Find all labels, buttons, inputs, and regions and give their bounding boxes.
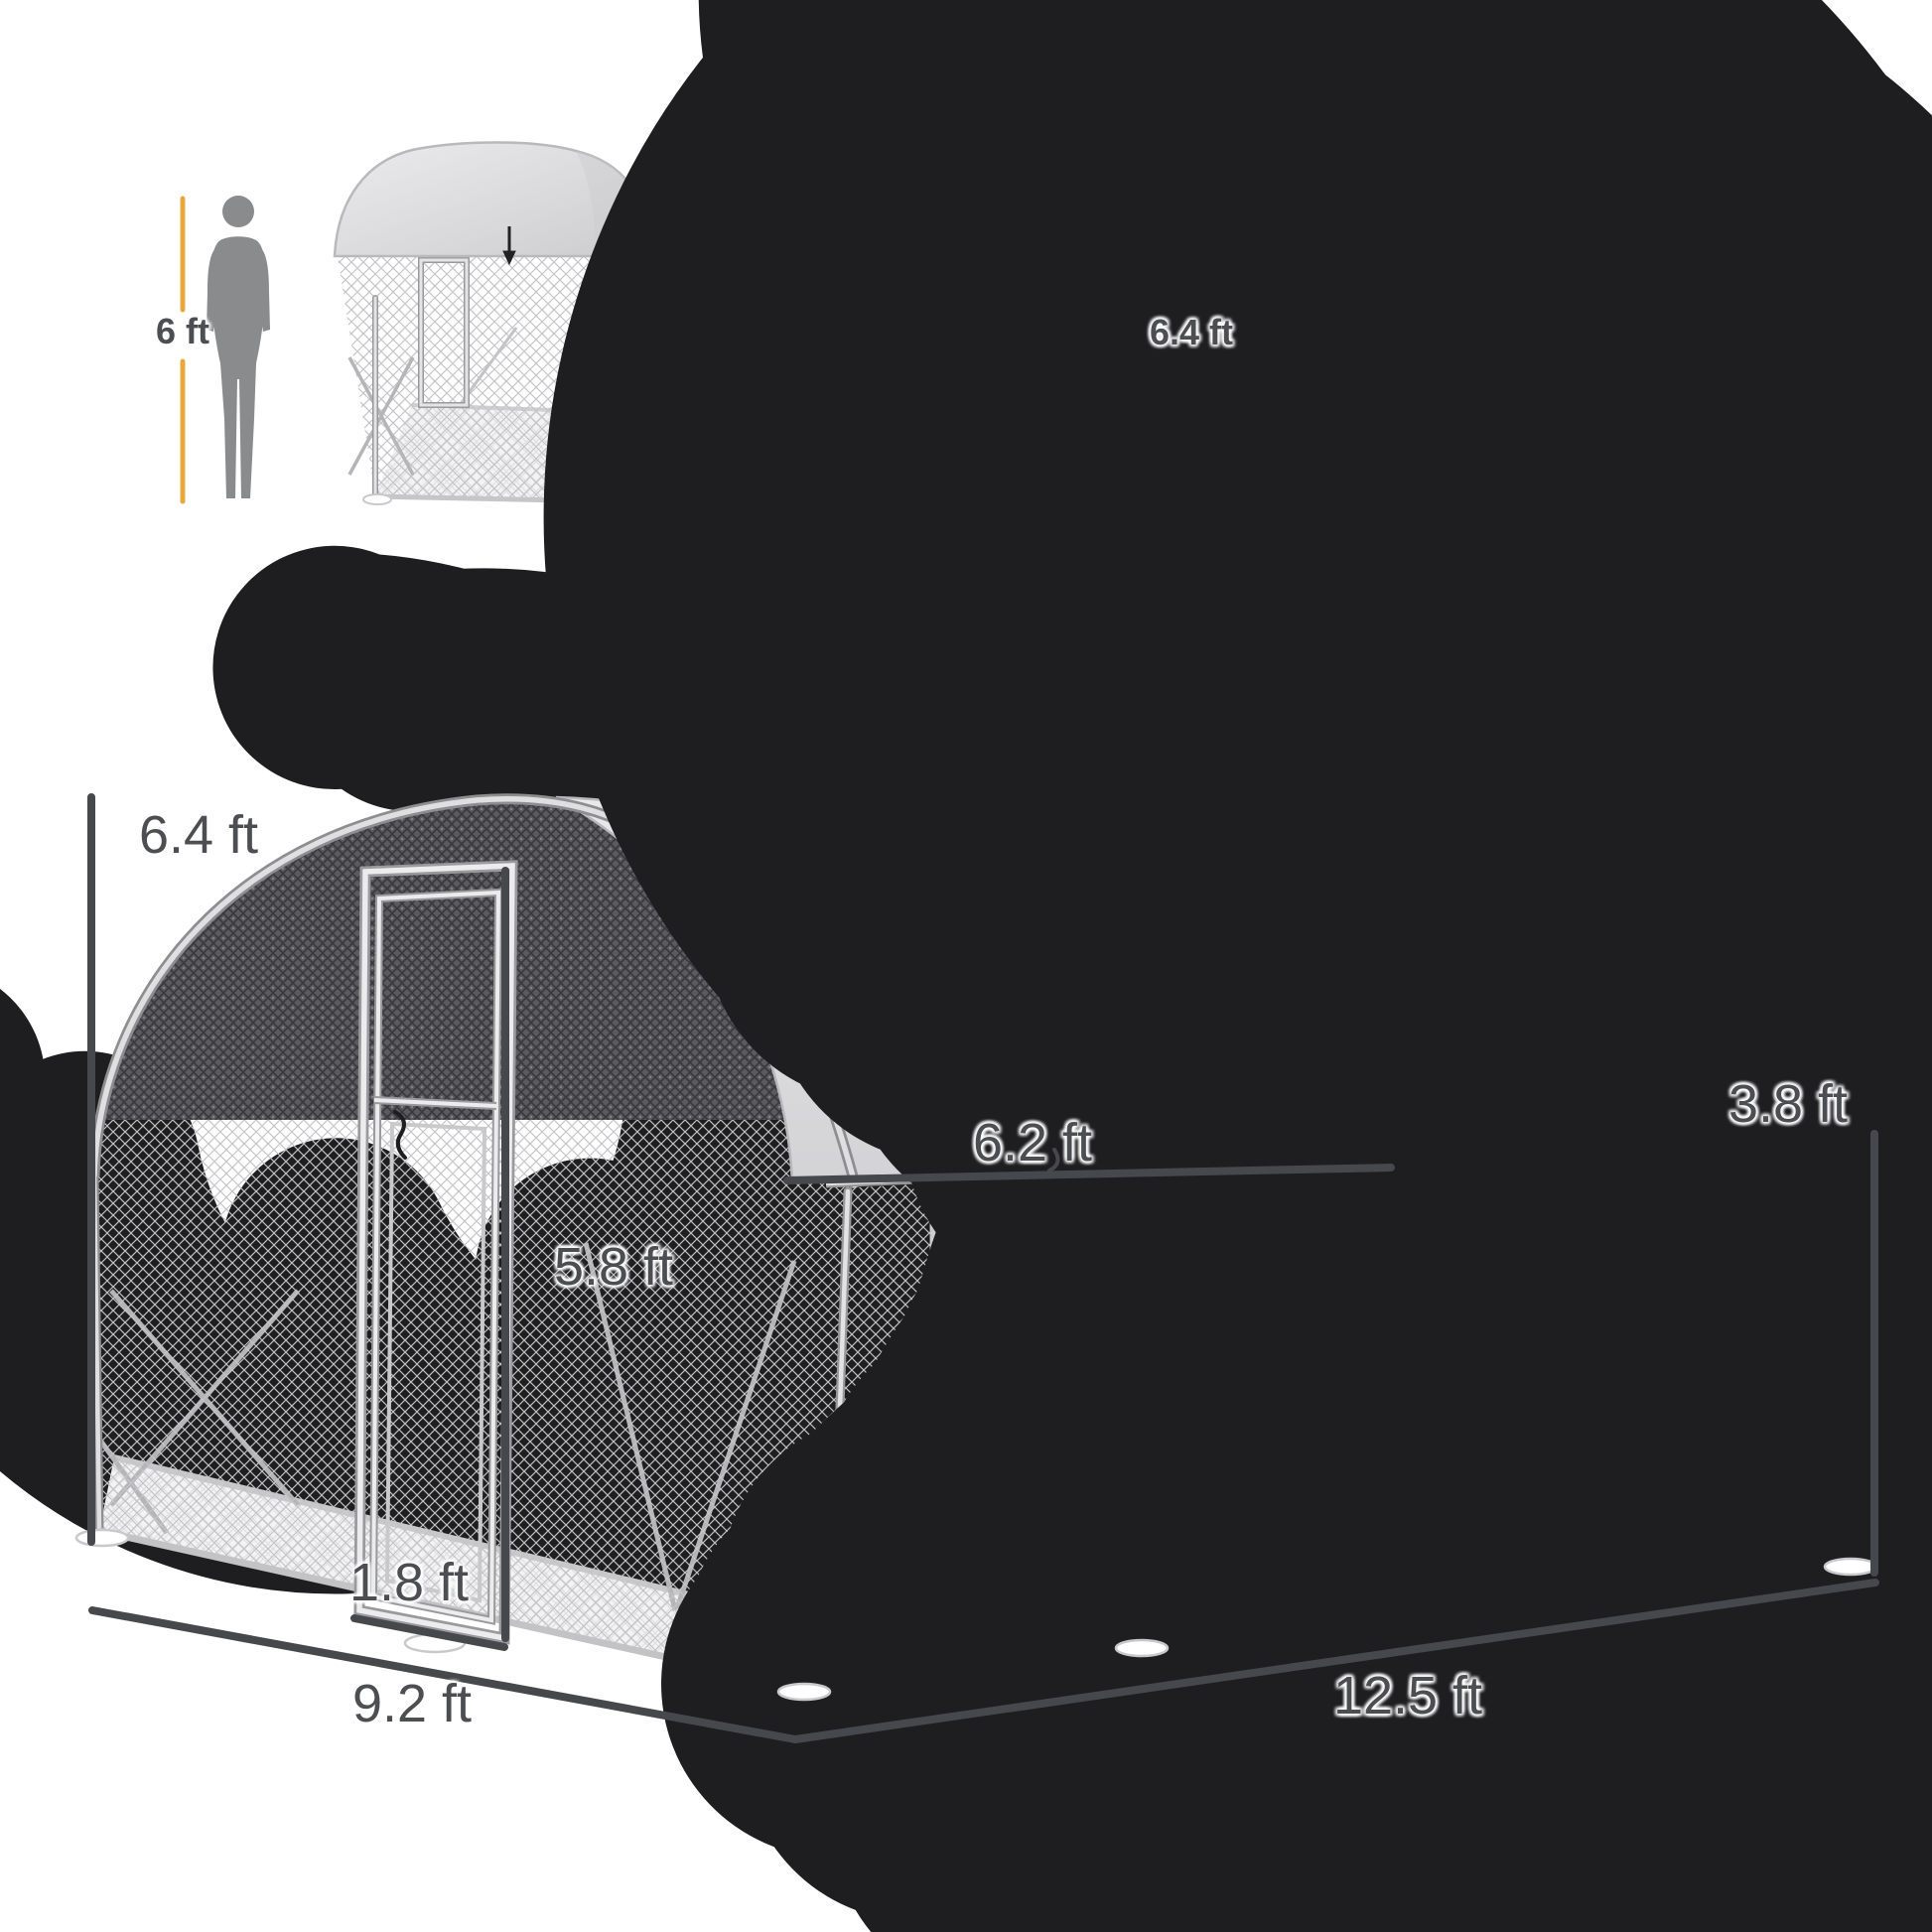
run-length-label: 12.5 ft xyxy=(1333,1665,1482,1726)
door-height-label: 5.8 ft xyxy=(554,1236,673,1298)
door-width-label: 1.8 ft xyxy=(349,1552,469,1613)
person-height-label: 6 ft xyxy=(156,311,209,352)
coop-illustration xyxy=(0,0,1932,1932)
run-wall-height-label: 3.8 ft xyxy=(1728,1073,1848,1135)
dome-depth-label: 9.2 ft xyxy=(352,1673,472,1734)
dimension-diagram: 6 ft 6.4 ft 6.4 ft 5.8 ft 1.8 ft 9.2 ft … xyxy=(0,0,1932,1932)
person-silhouette xyxy=(207,196,270,498)
reference-coop-height-label: 6.4 ft xyxy=(1150,312,1233,353)
run-top-width-label: 6.2 ft xyxy=(973,1112,1092,1173)
total-height-label: 6.4 ft xyxy=(139,804,258,866)
